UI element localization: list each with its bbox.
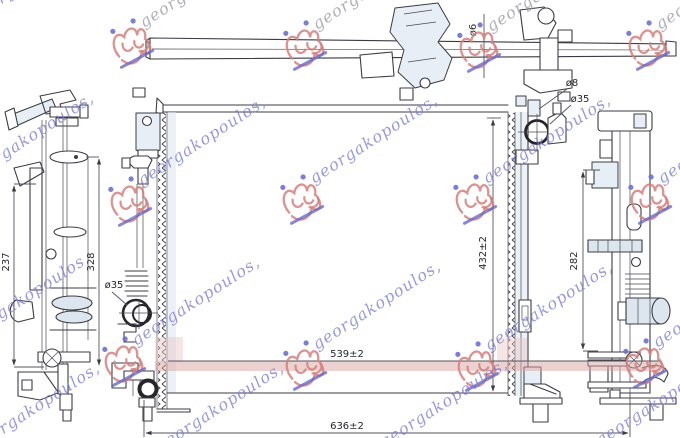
watermark-text: georgakopoulos, — [0, 358, 103, 438]
hose-connector-barrel — [618, 298, 670, 324]
dimension-core-width: 539±2 — [330, 349, 364, 360]
dimension-bleed-diameter: ø8 — [566, 78, 578, 89]
watermark-text: georgakopoulos, — [136, 0, 272, 31]
drain-plug-ring — [140, 381, 157, 398]
catalog-product-drawing: 237 328 432±2 282 539±2 636±2 ø6 ø8 ø35 … — [0, 0, 680, 438]
watermark-text: georgakopoulos, — [652, 0, 680, 33]
watermark-text: georgakopoulos, — [0, 0, 101, 25]
dimension-core-height: 432±2 — [478, 236, 489, 270]
watermark-text: georgakopoulos, — [654, 90, 680, 187]
dimension-right-height: 282 — [569, 251, 580, 270]
side-mount-rail — [588, 240, 642, 252]
dimension-left-height-outer: 237 — [1, 252, 12, 271]
dimension-outlet-diameter: ø35 — [105, 280, 124, 291]
dimension-overall-width: 636±2 — [330, 421, 364, 432]
top-view — [146, 3, 676, 101]
front-bottom-right-foot — [520, 367, 562, 422]
